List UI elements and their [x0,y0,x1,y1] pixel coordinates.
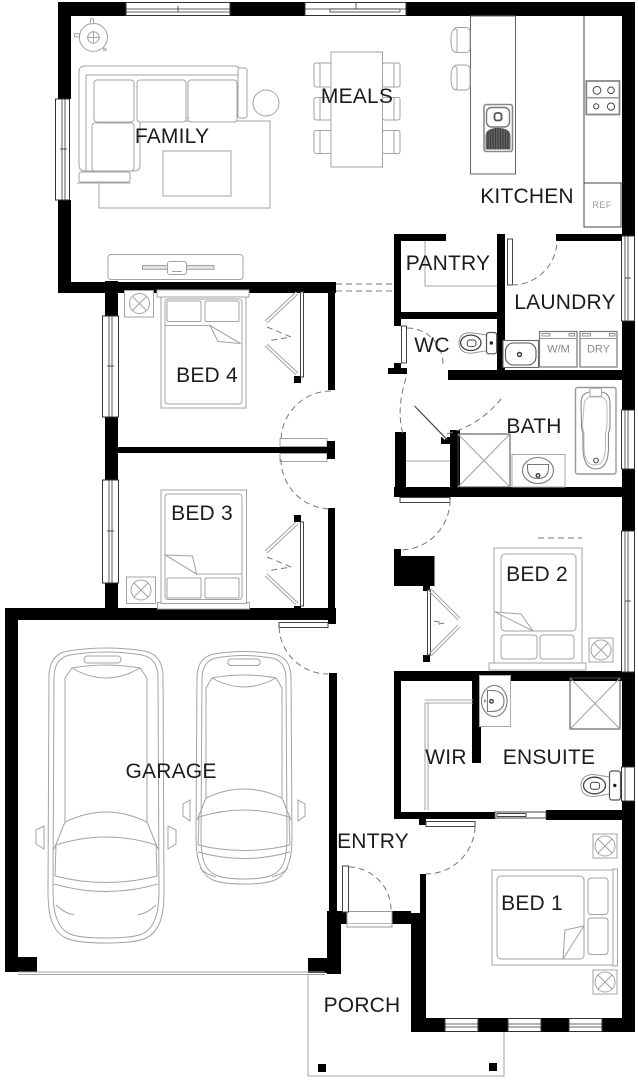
svg-text:REF: REF [592,200,612,210]
svg-text:DRY: DRY [587,344,611,356]
svg-text:PORCH: PORCH [324,994,401,1017]
svg-text:BED 4: BED 4 [176,364,238,387]
svg-text:BED 1: BED 1 [501,892,563,915]
svg-text:ENTRY: ENTRY [337,830,409,853]
svg-text:WC: WC [414,334,449,357]
svg-text:ENSUITE: ENSUITE [503,746,595,769]
svg-text:MEALS: MEALS [321,85,393,108]
svg-text:WIR: WIR [425,746,466,769]
svg-text:LAUNDRY: LAUNDRY [514,291,615,314]
svg-text:W/M: W/M [547,344,570,356]
svg-text:BATH: BATH [506,415,561,438]
svg-text:BED 2: BED 2 [506,563,568,586]
svg-text:KITCHEN: KITCHEN [480,185,574,208]
svg-text:FAMILY: FAMILY [135,125,209,148]
svg-text:PANTRY: PANTRY [406,252,490,275]
svg-text:BED 3: BED 3 [171,502,233,525]
svg-text:GARAGE: GARAGE [125,760,216,783]
